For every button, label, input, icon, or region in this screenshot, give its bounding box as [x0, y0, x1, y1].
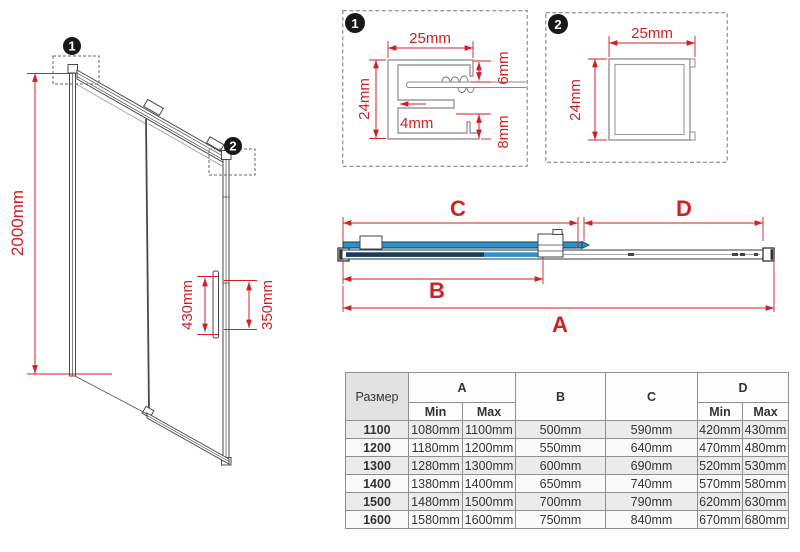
table-row: 1200 1180mm 1200mm 550mm 640mm 470mm 480…: [346, 439, 789, 457]
detail-2-profile-diagram: 2 25mm 24mm: [545, 12, 728, 163]
cell-a-max: 1200mm: [463, 439, 516, 457]
detail1-height-label: 24mm: [356, 78, 373, 120]
cell-d-min: 620mm: [698, 493, 743, 511]
cell-a-max: 1300mm: [463, 457, 516, 475]
cell-d-max: 530mm: [743, 457, 789, 475]
cell-a-min: 1080mm: [409, 421, 463, 439]
plan-label-b: B: [429, 278, 445, 303]
cell-d-max: 430mm: [743, 421, 789, 439]
handle-holes-label: 350mm: [259, 280, 276, 330]
plan-view-diagram: C D B A: [332, 192, 798, 342]
table-row: 1300 1280mm 1300mm 600mm 690mm 520mm 530…: [346, 457, 789, 475]
size-row-label: 1300: [346, 457, 409, 475]
plan-label-a: A: [552, 312, 568, 337]
plan-roller-housing-right: [538, 230, 563, 258]
plan-label-d: D: [676, 196, 692, 221]
marker-2-number: 2: [229, 139, 236, 154]
cell-d-max: 580mm: [743, 475, 789, 493]
plan-label-c: C: [450, 196, 466, 221]
table-row: 1600 1580mm 1600mm 750mm 840mm 670mm 680…: [346, 511, 789, 529]
detail2-height-label: 24mm: [567, 79, 584, 121]
cell-c: 590mm: [606, 421, 698, 439]
cell-b: 600mm: [516, 457, 606, 475]
panel-divider: [146, 119, 149, 413]
size-row-label: 1100: [346, 421, 409, 439]
table-header-d-max: Max: [743, 403, 789, 421]
cell-c: 640mm: [606, 439, 698, 457]
cell-d-min: 670mm: [698, 511, 743, 529]
cell-b: 750mm: [516, 511, 606, 529]
top-left-cap: [68, 65, 78, 74]
cell-c: 790mm: [606, 493, 698, 511]
cell-d-max: 630mm: [743, 493, 789, 511]
size-row-label: 1600: [346, 511, 409, 529]
door-elevation-diagram: 2000mm 430mm 350mm 1 2: [0, 0, 340, 552]
square-profile-section: [609, 59, 695, 140]
detail1-bottom-gap-label: 8mm: [495, 115, 512, 148]
gasket-clips: [442, 76, 474, 93]
cell-c: 740mm: [606, 475, 698, 493]
table-header-c: C: [606, 373, 698, 421]
table-header-a-min: Min: [409, 403, 463, 421]
table-row: 1500 1480mm 1500mm 700mm 790mm 620mm 630…: [346, 493, 789, 511]
cell-d-max: 680mm: [743, 511, 789, 529]
table-header-d-min: Min: [698, 403, 743, 421]
cell-d-min: 470mm: [698, 439, 743, 457]
door-frame-drawing: [68, 65, 231, 466]
cell-c: 840mm: [606, 511, 698, 529]
cell-b: 500mm: [516, 421, 606, 439]
cell-a-max: 1400mm: [463, 475, 516, 493]
size-row-label: 1200: [346, 439, 409, 457]
detail2-width-label: 25mm: [631, 25, 673, 42]
cell-b: 650mm: [516, 475, 606, 493]
handle-length-label: 430mm: [179, 280, 196, 330]
cell-a-min: 1380mm: [409, 475, 463, 493]
cell-d-min: 570mm: [698, 475, 743, 493]
cell-d-max: 480mm: [743, 439, 789, 457]
cell-b: 550mm: [516, 439, 606, 457]
table-header-size: Размер: [346, 373, 409, 421]
technical-drawing-page: 2000mm 430mm 350mm 1 2 1: [0, 0, 800, 552]
detail1-width-label: 25mm: [409, 30, 451, 47]
size-table-container: Размер A B C D Min Max Min Max 1100 1080…: [345, 372, 789, 529]
cell-b: 700mm: [516, 493, 606, 511]
cell-c: 690mm: [606, 457, 698, 475]
size-table: Размер A B C D Min Max Min Max 1100 1080…: [345, 372, 789, 529]
plan-door-assembly: [338, 230, 774, 262]
table-header-a: A: [409, 373, 516, 403]
detail2-marker-number: 2: [554, 17, 561, 32]
size-row-label: 1400: [346, 475, 409, 493]
table-header-d: D: [698, 373, 789, 403]
cell-a-min: 1580mm: [409, 511, 463, 529]
cell-a-max: 1500mm: [463, 493, 516, 511]
table-header-a-max: Max: [463, 403, 516, 421]
cell-a-max: 1600mm: [463, 511, 516, 529]
table-row: 1400 1380mm 1400mm 650mm 740mm 570mm 580…: [346, 475, 789, 493]
top-rail: [77, 70, 228, 165]
cell-a-min: 1180mm: [409, 439, 463, 457]
table-header-b: B: [516, 373, 606, 421]
size-row-label: 1500: [346, 493, 409, 511]
door-handle: [213, 271, 219, 338]
cell-d-min: 520mm: [698, 457, 743, 475]
detail1-inner-label: 4mm: [400, 115, 433, 132]
plan-roller-housing-left: [360, 236, 382, 249]
detail1-top-gap-label: 6mm: [495, 51, 512, 84]
cell-a-min: 1480mm: [409, 493, 463, 511]
cell-a-min: 1280mm: [409, 457, 463, 475]
marker-1-number: 1: [68, 39, 75, 54]
detail-1-profile-diagram: 1 25mm 24mm 4mm 6mm 8: [342, 10, 528, 167]
cell-d-min: 420mm: [698, 421, 743, 439]
door-height-label: 2000mm: [8, 190, 27, 256]
detail1-marker-number: 1: [351, 16, 358, 31]
plan-sliding-glass-end: [582, 242, 589, 249]
cell-a-max: 1100mm: [463, 421, 516, 439]
table-row: 1100 1080mm 1100mm 500mm 590mm 420mm 430…: [346, 421, 789, 439]
